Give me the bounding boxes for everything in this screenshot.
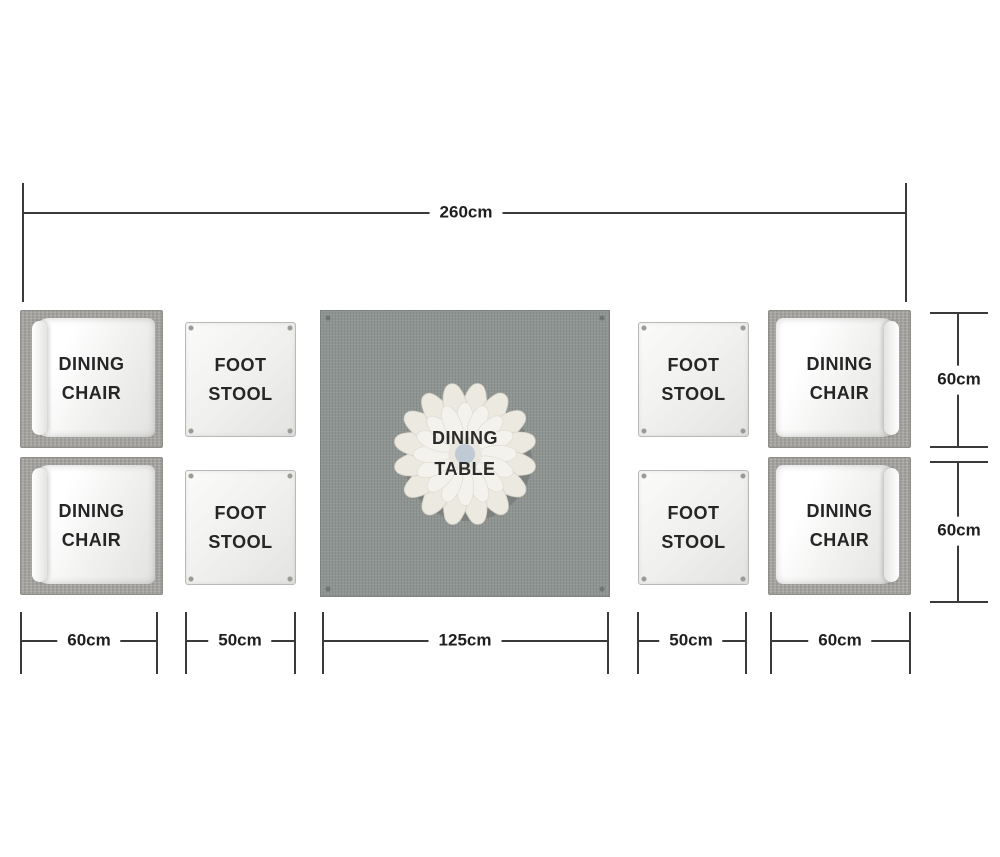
foot-stool-bottom-left: FOOT STOOL: [185, 470, 296, 585]
foot-stool-label: FOOT STOOL: [186, 471, 295, 584]
dining-chair-label: DINING CHAIR: [20, 457, 163, 595]
foot-stool-top-right: FOOT STOOL: [638, 322, 749, 437]
right-height-label-bottom: 60cm: [934, 517, 983, 546]
foot-stool-top-left: FOOT STOOL: [185, 322, 296, 437]
dining-chair-label: DINING CHAIR: [768, 310, 911, 448]
dining-chair-bottom-right: DINING CHAIR: [768, 457, 911, 595]
extension-line-right: [905, 183, 907, 302]
dining-chair-bottom-left: DINING CHAIR: [20, 457, 163, 595]
bottom-width-label-3: 125cm: [429, 632, 502, 651]
bottom-width-label-5: 60cm: [808, 632, 871, 651]
tick: [156, 612, 158, 674]
foot-stool-bottom-right: FOOT STOOL: [638, 470, 749, 585]
dining-chair-label: DINING CHAIR: [20, 310, 163, 448]
right-height-label-top: 60cm: [934, 366, 983, 395]
tick: [909, 612, 911, 674]
dining-table: DINING TABLE: [320, 310, 610, 597]
tick: [770, 612, 772, 674]
bottom-width-label-2: 50cm: [208, 632, 271, 651]
tick: [20, 612, 22, 674]
tick: [294, 612, 296, 674]
tick: [930, 312, 988, 314]
tick: [607, 612, 609, 674]
floor-plan-canvas: 260cm: [0, 0, 1000, 857]
dining-table-label: DINING TABLE: [400, 423, 530, 485]
tick: [185, 612, 187, 674]
tick: [930, 446, 988, 448]
foot-stool-label: FOOT STOOL: [639, 323, 748, 436]
tick: [637, 612, 639, 674]
tick: [322, 612, 324, 674]
dining-chair-top-left: DINING CHAIR: [20, 310, 163, 448]
extension-line-left: [22, 183, 24, 302]
tick: [930, 461, 988, 463]
bottom-width-label-4: 50cm: [659, 632, 722, 651]
dining-chair-label: DINING CHAIR: [768, 457, 911, 595]
bottom-width-label-1: 60cm: [57, 632, 120, 651]
dining-chair-top-right: DINING CHAIR: [768, 310, 911, 448]
overall-width-label: 260cm: [430, 204, 503, 223]
foot-stool-label: FOOT STOOL: [186, 323, 295, 436]
tick: [745, 612, 747, 674]
foot-stool-label: FOOT STOOL: [639, 471, 748, 584]
tick: [930, 601, 988, 603]
